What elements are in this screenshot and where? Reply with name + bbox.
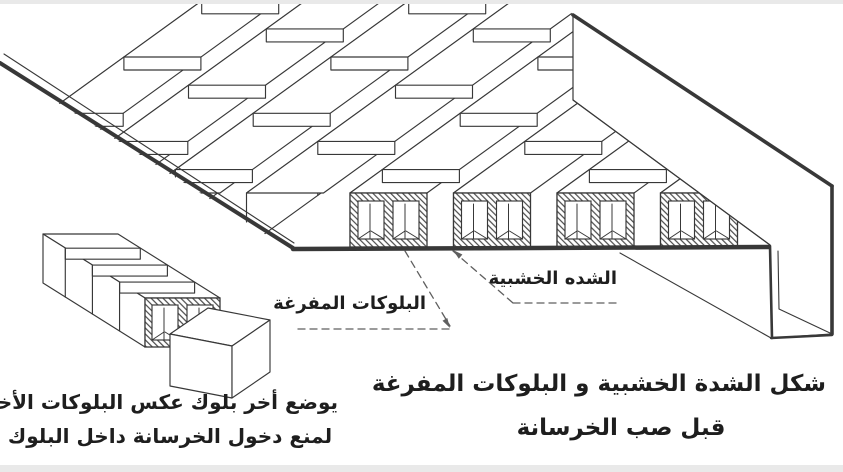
detail-caption-line2: لمنع دخول الخرسانة داخل البلوك bbox=[2, 425, 338, 448]
callout-hollow-blocks: البلوكات المفرغة bbox=[292, 294, 426, 315]
page-margin-top bbox=[0, 0, 843, 4]
detail-caption-line1: يوضع أخر بلوك عكس البلوكات الأخرى bbox=[2, 391, 338, 414]
page-margin-bottom bbox=[0, 465, 843, 472]
scanned-figure-page: الشده الخشبية البلوكات المفرغة شكل الشدة… bbox=[0, 0, 843, 472]
callout-formwork: الشده الخشبية bbox=[501, 269, 617, 290]
main-caption-line2: قبل صب الخرسانة bbox=[416, 415, 826, 441]
main-caption-line1: شكل الشدة الخشبية و البلوكات المفرغة bbox=[416, 371, 826, 397]
